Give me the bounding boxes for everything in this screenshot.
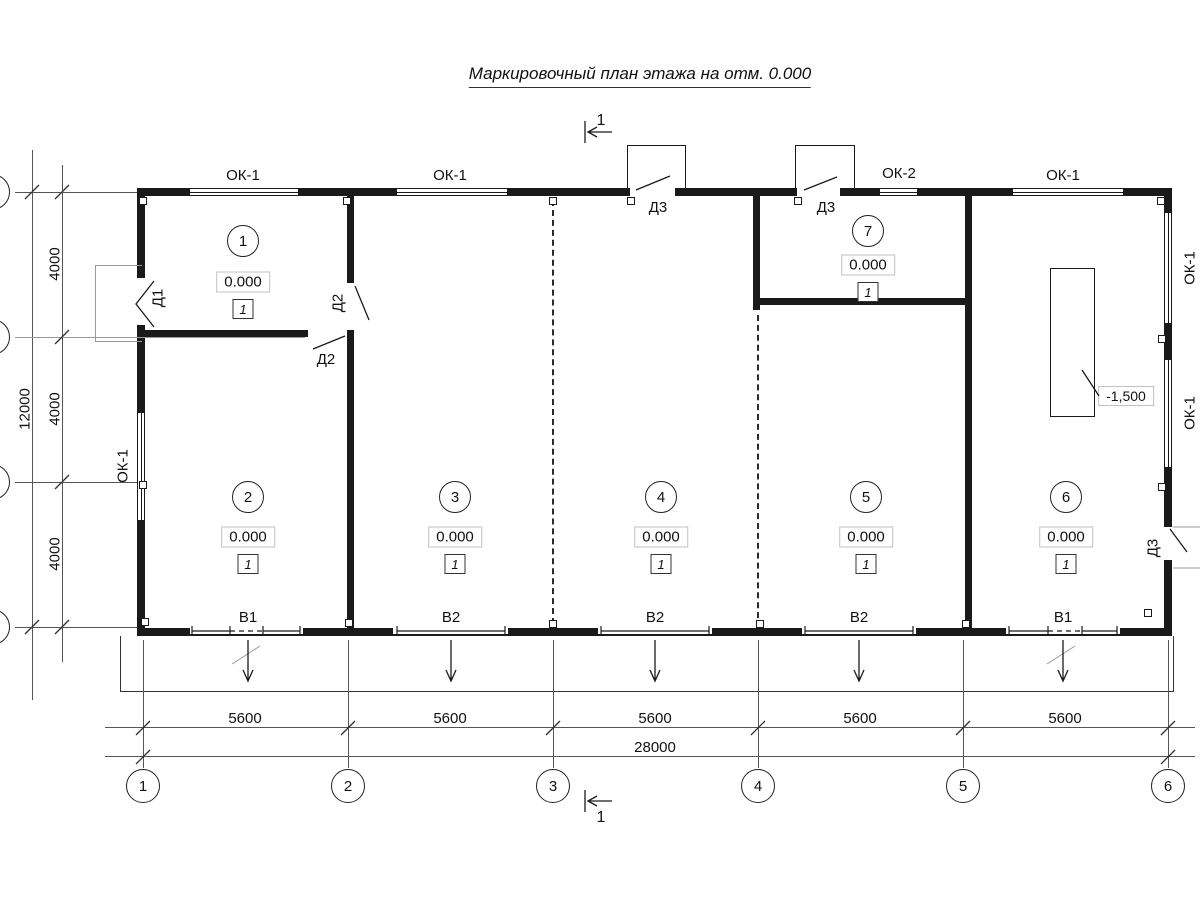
room-number-5: 5 — [850, 481, 882, 513]
wall-interior — [965, 196, 972, 628]
window-right-2 — [1164, 360, 1172, 467]
wall-junction — [549, 620, 557, 628]
dim-bay-5: 5600 — [1048, 710, 1081, 727]
room-number-3: 3 — [439, 481, 471, 513]
room-elevation-2: 0.000 — [221, 527, 275, 548]
room-finish-1: 1 — [233, 299, 254, 319]
room-elevation-1: 0.000 — [216, 272, 270, 293]
grid-bubble-row — [0, 609, 10, 645]
wall-junction — [1157, 197, 1165, 205]
grid-extension — [15, 192, 137, 193]
grid-bubble-6: 6 — [1151, 769, 1185, 803]
grid-bubble-row — [0, 319, 10, 355]
dim-bay-4: 5600 — [843, 710, 876, 727]
grid-extension — [15, 337, 305, 338]
window-label-top-4: ОК-1 — [1046, 167, 1080, 184]
dim-total-width: 28000 — [634, 739, 676, 756]
room-finish-4: 1 — [651, 554, 672, 574]
door-label-d3-top-1: Д3 — [649, 199, 668, 216]
wall-interior — [347, 196, 354, 283]
porch-top-1 — [627, 145, 686, 189]
porch-left — [95, 265, 142, 342]
wall-junction — [139, 481, 147, 489]
window-bottom-2 — [508, 628, 598, 634]
wall-segment — [298, 188, 397, 196]
wall-interior — [145, 330, 308, 337]
window-top-2 — [397, 188, 507, 196]
room-elevation-4: 0.000 — [634, 527, 688, 548]
window-label-top-1: ОК-1 — [226, 167, 260, 184]
window-bottom-4 — [916, 628, 1006, 634]
grid-bubble-4: 4 — [741, 769, 775, 803]
room-elevation-7: 0.000 — [841, 255, 895, 276]
room-elevation-5: 0.000 — [839, 527, 893, 548]
wall-interior — [347, 330, 354, 628]
grid-extension — [15, 482, 137, 483]
porch-top-2 — [795, 145, 855, 189]
grid-extension — [1168, 640, 1169, 768]
partition-dashed-2 — [757, 315, 759, 628]
wall-segment — [840, 188, 880, 196]
door-label-d2-vertical: Д2 — [330, 294, 347, 313]
drain-label-2: В2 — [442, 609, 460, 626]
room-finish-2: 1 — [238, 554, 259, 574]
drain-label-1: В1 — [239, 609, 257, 626]
dim-bay-1: 5600 — [228, 710, 261, 727]
grid-extension — [15, 627, 137, 628]
wall-junction — [343, 197, 351, 205]
grid-bubble-5: 5 — [946, 769, 980, 803]
room-number-1: 1 — [227, 225, 259, 257]
door-label-d3-top-2: Д3 — [817, 199, 836, 216]
dimension-line-bays — [105, 727, 1195, 728]
wall-segment — [137, 628, 190, 636]
wall-junction — [794, 197, 802, 205]
wall-junction — [1158, 483, 1166, 491]
wall-junction — [627, 197, 635, 205]
wall-junction — [549, 197, 557, 205]
grid-extension — [553, 640, 554, 768]
window-right-1 — [1164, 213, 1172, 323]
window-label-top-3: ОК-2 — [882, 165, 916, 182]
room-finish-3: 1 — [445, 554, 466, 574]
section-mark-label-top: 1 — [597, 112, 606, 130]
grid-bubble-1: 1 — [126, 769, 160, 803]
wall-junction — [345, 619, 353, 627]
door-swing-d2-horizontal — [313, 336, 345, 349]
room-number-7: 7 — [852, 215, 884, 247]
wall-segment — [1164, 188, 1172, 213]
door-swing-d2-vertical — [355, 286, 369, 320]
room-number-4: 4 — [645, 481, 677, 513]
dim-total-height: 12000 — [17, 388, 34, 430]
wall-junction — [962, 620, 970, 628]
door-label-d1: Д1 — [150, 289, 167, 308]
apron-strip — [120, 636, 1174, 692]
room-elevation-3: 0.000 — [428, 527, 482, 548]
grid-extension — [348, 640, 349, 768]
room-number-2: 2 — [232, 481, 264, 513]
wall-junction — [141, 618, 149, 626]
window-bottom-3 — [712, 628, 802, 634]
room-finish-7: 1 — [858, 282, 879, 302]
dim-row-3: 4000 — [47, 537, 64, 570]
wall-junction — [1144, 609, 1152, 617]
grid-bubble-3: 3 — [536, 769, 570, 803]
dim-row-2: 4000 — [47, 392, 64, 425]
wall-junction — [756, 620, 764, 628]
grid-extension — [758, 640, 759, 768]
partition-dashed-1 — [552, 200, 554, 624]
window-top-4 — [1013, 188, 1123, 196]
window-label-right-2: ОК-1 — [1182, 396, 1199, 430]
grid-extension — [963, 640, 964, 768]
grid-bubble-2: 2 — [331, 769, 365, 803]
drawing-title: Маркировочный план этажа на отм. 0.000 — [469, 64, 811, 88]
wall-interior — [753, 196, 760, 310]
room-finish-6: 1 — [1056, 554, 1077, 574]
window-top-1 — [190, 188, 298, 196]
window-top-3 — [880, 188, 917, 196]
window-left — [137, 413, 145, 520]
wall-segment — [1120, 628, 1172, 636]
wall-segment — [675, 188, 797, 196]
pit-elevation-label: -1,500 — [1098, 386, 1154, 406]
window-label-right-1: ОК-1 — [1182, 251, 1199, 285]
room-finish-5: 1 — [856, 554, 877, 574]
wall-junction — [139, 197, 147, 205]
room-elevation-6: 0.000 — [1039, 527, 1093, 548]
pit-outline — [1050, 268, 1095, 417]
wall-segment — [1164, 467, 1172, 527]
door-label-d3-right: Д3 — [1145, 539, 1162, 558]
room-number-6: 6 — [1050, 481, 1082, 513]
grid-bubble-row — [0, 174, 10, 210]
window-label-left: ОК-1 — [115, 449, 132, 483]
wall-segment — [1164, 560, 1172, 636]
dim-bay-2: 5600 — [433, 710, 466, 727]
window-label-top-2: ОК-1 — [433, 167, 467, 184]
drain-label-3: В2 — [646, 609, 664, 626]
dimension-line-total — [105, 756, 1195, 757]
dim-row-1: 4000 — [47, 247, 64, 280]
door-swing-d3-right — [1170, 529, 1187, 552]
floor-plan-drawing: Маркировочный план этажа на отм. 0.000 -… — [0, 0, 1200, 900]
door-label-d2-horizontal: Д2 — [317, 351, 336, 368]
drain-label-5: В1 — [1054, 609, 1072, 626]
dim-bay-3: 5600 — [638, 710, 671, 727]
drain-label-4: В2 — [850, 609, 868, 626]
wall-segment — [507, 188, 630, 196]
section-mark-label-bottom: 1 — [597, 809, 606, 827]
grid-extension — [143, 640, 144, 768]
wall-segment — [917, 188, 1013, 196]
annotation-layer — [0, 0, 1200, 900]
wall-junction — [1158, 335, 1166, 343]
grid-bubble-row — [0, 464, 10, 500]
window-bottom-1 — [303, 628, 393, 634]
